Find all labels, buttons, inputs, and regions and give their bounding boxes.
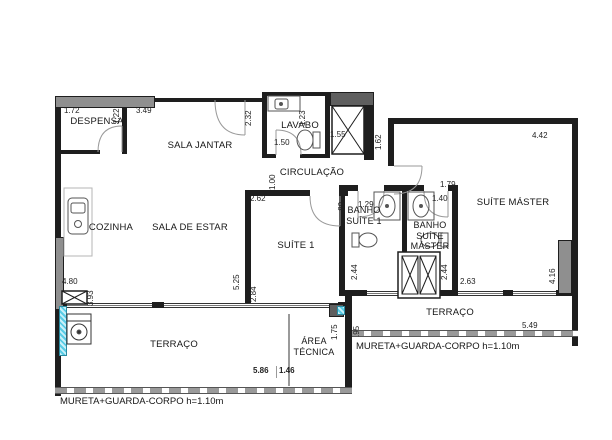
dim-5-86: 5.86: [253, 366, 269, 375]
door-suite-master: [394, 166, 422, 194]
lavabo-toilet: [297, 130, 313, 150]
door-entry: [215, 100, 245, 135]
dim-1-62: 1.62: [374, 134, 383, 150]
dim-1-22: 1.22: [112, 108, 121, 124]
dim-1-23: 1.23: [298, 110, 307, 126]
dim-3-49: 3.49: [136, 106, 152, 115]
plan-symbols: [0, 0, 612, 440]
room-label-banho-suite-master: BANHO SUÍTE MÁSTER: [405, 220, 455, 252]
dim-1-75: 1.75: [330, 324, 339, 340]
room-label-cozinha: COZINHA: [80, 222, 142, 233]
room-label-suite-1: SUÍTE 1: [265, 240, 327, 251]
dim-3-93: 3.93: [86, 290, 95, 306]
dim-4-80: 4.80: [62, 277, 78, 286]
dim-2-44-right: 2.44: [440, 264, 449, 280]
dim-4-16: 4.16: [548, 268, 557, 284]
dim-1-72: 1.72: [64, 106, 80, 115]
dim-4-42: 4.42: [532, 131, 548, 140]
room-label-terraco-right: TERRAÇO: [414, 307, 486, 318]
room-label-sala-jantar: SALA JANTAR: [155, 140, 245, 151]
dim-1-46: 1.46: [279, 366, 295, 375]
dim-0-89: .89: [337, 202, 346, 213]
door-suite-1: [310, 196, 340, 226]
floor-plan: DESPENSA SALA JANTAR LAVABO CIRCULAÇÃO C…: [0, 0, 612, 440]
dim-1-79: 1.79: [440, 180, 456, 189]
dim-1-50: 1.50: [274, 138, 290, 147]
dim-2-44-left: 2.44: [350, 264, 359, 280]
door-arcs: [98, 100, 448, 226]
dim-1-55: 1.55: [330, 130, 346, 139]
banho1-toilet: [359, 233, 377, 247]
note-mureta-bottom: MURETA+GUARDA-CORPO h=1.10m: [60, 396, 223, 407]
dim-5-25: 5.25: [232, 274, 241, 290]
dim-0-95: .95: [352, 326, 361, 337]
banho1-toilet-tank: [352, 233, 359, 247]
room-label-suite-master: SUÍTE MÁSTER: [465, 197, 561, 208]
dim-2-63: 2.63: [460, 277, 476, 286]
dim-1-40: 1.40: [432, 194, 448, 203]
room-label-terraco-left: TERRAÇO: [138, 339, 210, 350]
room-label-despensa: DESPENSA: [62, 116, 132, 127]
dim-2-32: 2.32: [244, 110, 253, 126]
note-mureta-right: MURETA+GUARDA-CORPO h=1.10m: [356, 341, 519, 352]
dim-1-29: 1.29: [358, 200, 374, 209]
dim-5-49: 5.49: [522, 321, 538, 330]
room-label-sala-de-estar: SALA DE ESTAR: [138, 222, 242, 233]
dim-2-84: 2.84: [249, 286, 258, 302]
dim-1-00: 1.00: [268, 174, 277, 190]
room-label-circulacao: CIRCULAÇÃO: [267, 167, 357, 178]
dim-2-62: 2.62: [250, 194, 266, 203]
door-despensa: [98, 126, 122, 152]
